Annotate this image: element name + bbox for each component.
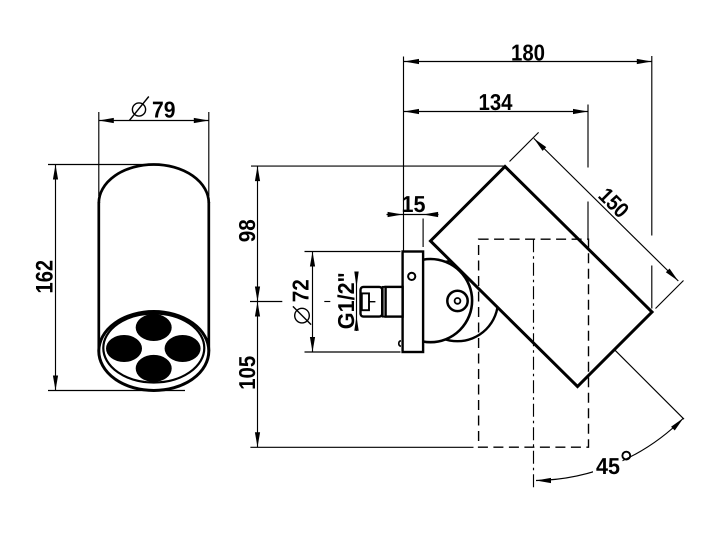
svg-text:105: 105 [234, 356, 260, 390]
svg-text:15: 15 [402, 191, 426, 217]
svg-text:162: 162 [32, 260, 59, 294]
svg-text:98: 98 [234, 219, 260, 242]
svg-text:134: 134 [479, 89, 513, 115]
svg-text:45: 45 [596, 453, 620, 479]
svg-text:G1/2": G1/2" [333, 272, 359, 329]
svg-text:72: 72 [287, 279, 313, 302]
svg-text:180: 180 [511, 40, 545, 66]
svg-text:79: 79 [152, 96, 176, 122]
